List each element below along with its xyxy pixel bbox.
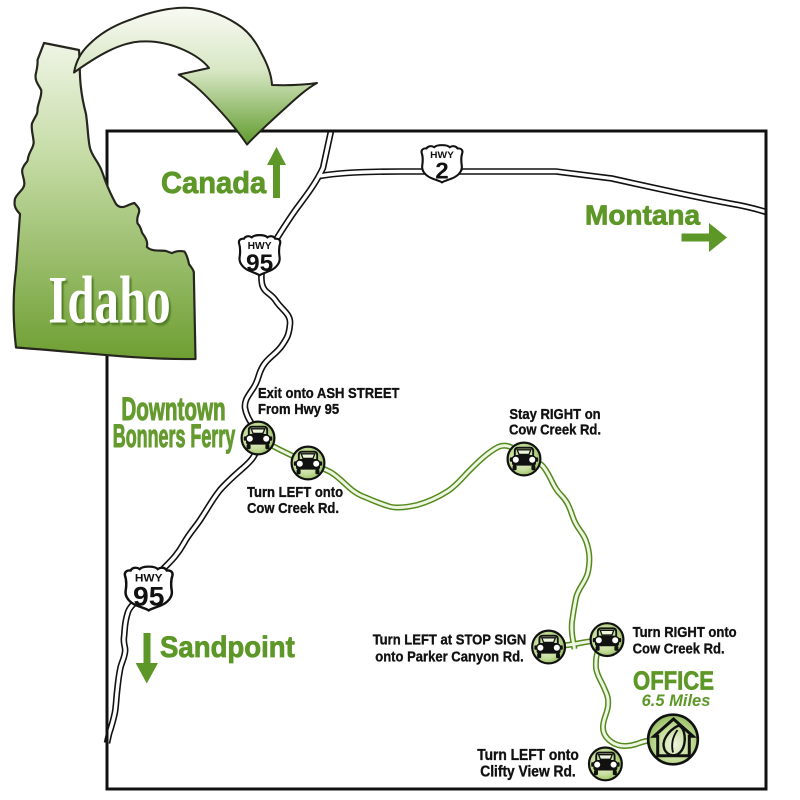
svg-text:Exit onto ASH STREET: Exit onto ASH STREET [258,384,400,401]
svg-text:Clifty View Rd.: Clifty View Rd. [480,764,575,781]
svg-text:Cow Creek Rd.: Cow Creek Rd. [509,421,601,438]
svg-text:95: 95 [246,250,273,277]
svg-text:Montana: Montana [585,200,701,231]
svg-text:Turn LEFT onto: Turn LEFT onto [247,483,343,500]
svg-text:95: 95 [133,581,164,611]
svg-text:Stay RIGHT on: Stay RIGHT on [509,405,600,422]
svg-text:onto Parker Canyon Rd.: onto Parker Canyon Rd. [375,648,524,665]
svg-text:Idaho: Idaho [48,262,170,338]
svg-text:Turn LEFT at STOP SIGN: Turn LEFT at STOP SIGN [373,631,527,648]
svg-text:Sandpoint: Sandpoint [160,631,295,664]
svg-text:From Hwy 95: From Hwy 95 [258,400,339,417]
svg-text:Bonners Ferry: Bonners Ferry [113,420,236,455]
svg-text:Canada: Canada [161,166,267,200]
svg-text:Cow Creek Rd.: Cow Creek Rd. [247,499,339,516]
svg-text:Cow Creek Rd.: Cow Creek Rd. [633,640,725,657]
svg-text:6.5 Miles: 6.5 Miles [642,692,711,710]
svg-text:Turn RIGHT onto: Turn RIGHT onto [633,623,737,640]
svg-text:2: 2 [435,158,448,183]
svg-text:Turn LEFT onto: Turn LEFT onto [477,747,579,764]
